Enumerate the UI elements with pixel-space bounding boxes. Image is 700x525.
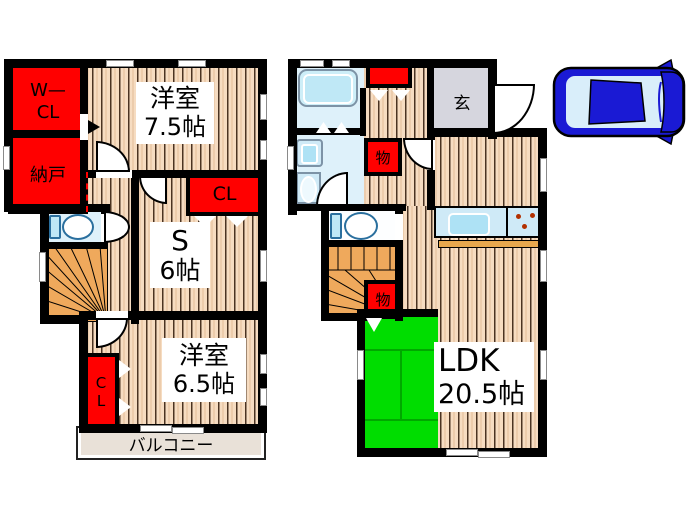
- wall: [321, 204, 329, 321]
- nando-label: 納戸: [30, 161, 66, 187]
- closet-lower-line1: C: [96, 374, 106, 392]
- closet-lower-line2: L: [97, 392, 105, 410]
- sliding-window: [478, 451, 510, 458]
- window: [106, 60, 134, 67]
- closet-upper: CL: [186, 172, 263, 216]
- s-room-size: 6帖: [160, 257, 201, 286]
- genkan-label: 玄: [454, 89, 471, 114]
- wall: [427, 64, 434, 136]
- window: [260, 94, 267, 120]
- window: [260, 354, 267, 374]
- walk-in-closet: W— CL: [8, 63, 88, 140]
- ldk-size: 20.5帖: [438, 379, 525, 410]
- genkan-entrance: 玄: [431, 66, 493, 136]
- window: [260, 140, 267, 160]
- sliding-window: [140, 425, 172, 432]
- balcony-label: バルコニー: [129, 431, 214, 456]
- storage-top: 物: [364, 138, 402, 176]
- window: [178, 60, 206, 67]
- wall: [79, 315, 88, 433]
- wall: [360, 88, 366, 136]
- wcl-label-line2: CL: [37, 102, 60, 123]
- wall: [288, 59, 297, 215]
- room-7-5-name: 洋室: [150, 85, 200, 114]
- room-6-5-size: 6.5帖: [173, 371, 235, 399]
- entrance-door-arc: [493, 84, 535, 134]
- wall: [4, 204, 110, 212]
- wall: [40, 242, 108, 249]
- closet-upper-label: CL: [213, 183, 237, 205]
- window: [300, 60, 324, 67]
- window: [540, 158, 547, 192]
- wall: [131, 170, 139, 324]
- room-7-5-label: 洋室 7.5帖: [136, 82, 214, 144]
- wall: [4, 130, 88, 138]
- window: [3, 146, 10, 170]
- nando-storage: 納戸: [8, 134, 88, 214]
- wall: [321, 240, 402, 247]
- stove-burner-icon: [530, 213, 535, 218]
- kitchen-counter: [434, 206, 542, 238]
- toilet-icon: [344, 212, 378, 240]
- s-room-name: S: [171, 225, 189, 257]
- bathtub-icon: [298, 69, 358, 107]
- wall: [4, 59, 266, 68]
- window: [287, 146, 294, 170]
- washbasin-icon: [296, 139, 323, 167]
- door-opening: [395, 214, 403, 240]
- toilet-tank-icon: [330, 213, 342, 239]
- ldk-name: LDK: [438, 344, 499, 380]
- room-7-5-size: 7.5帖: [144, 114, 206, 142]
- window: [357, 350, 364, 380]
- wcl-label-line1: W—: [30, 80, 66, 101]
- closet-lower: C L: [83, 353, 119, 431]
- door-opening: [80, 114, 88, 140]
- window: [540, 350, 547, 380]
- car-top-view-icon: [549, 58, 689, 146]
- room-6-5-name: 洋室: [179, 342, 229, 371]
- stove-burner-icon: [522, 224, 527, 229]
- opening-marker-dashed: [86, 172, 91, 212]
- kitchen-sink-icon: [448, 213, 490, 236]
- storage-top-label: 物: [375, 147, 390, 168]
- window: [332, 60, 350, 67]
- wall: [357, 311, 365, 457]
- ldk-label: LDK 20.5帖: [434, 342, 534, 412]
- tatami-area: [362, 313, 438, 453]
- sliding-window: [446, 449, 478, 456]
- kitchen-counter-edge: [438, 240, 540, 248]
- toilet-icon: [62, 214, 94, 240]
- window: [260, 250, 267, 282]
- s-room-label: S 6帖: [150, 222, 210, 288]
- floor-plan-canvas: バルコニー W— CL 納戸 CL C L: [0, 0, 700, 525]
- toilet-tank-icon: [49, 215, 61, 239]
- window: [39, 252, 46, 282]
- sliding-window: [172, 427, 204, 434]
- wall: [427, 128, 547, 137]
- storage-bottom-label: 物: [375, 289, 390, 310]
- room-6-5-label: 洋室 6.5帖: [162, 338, 246, 402]
- stove-burner-icon: [516, 214, 521, 219]
- window: [260, 388, 267, 406]
- window: [540, 250, 547, 282]
